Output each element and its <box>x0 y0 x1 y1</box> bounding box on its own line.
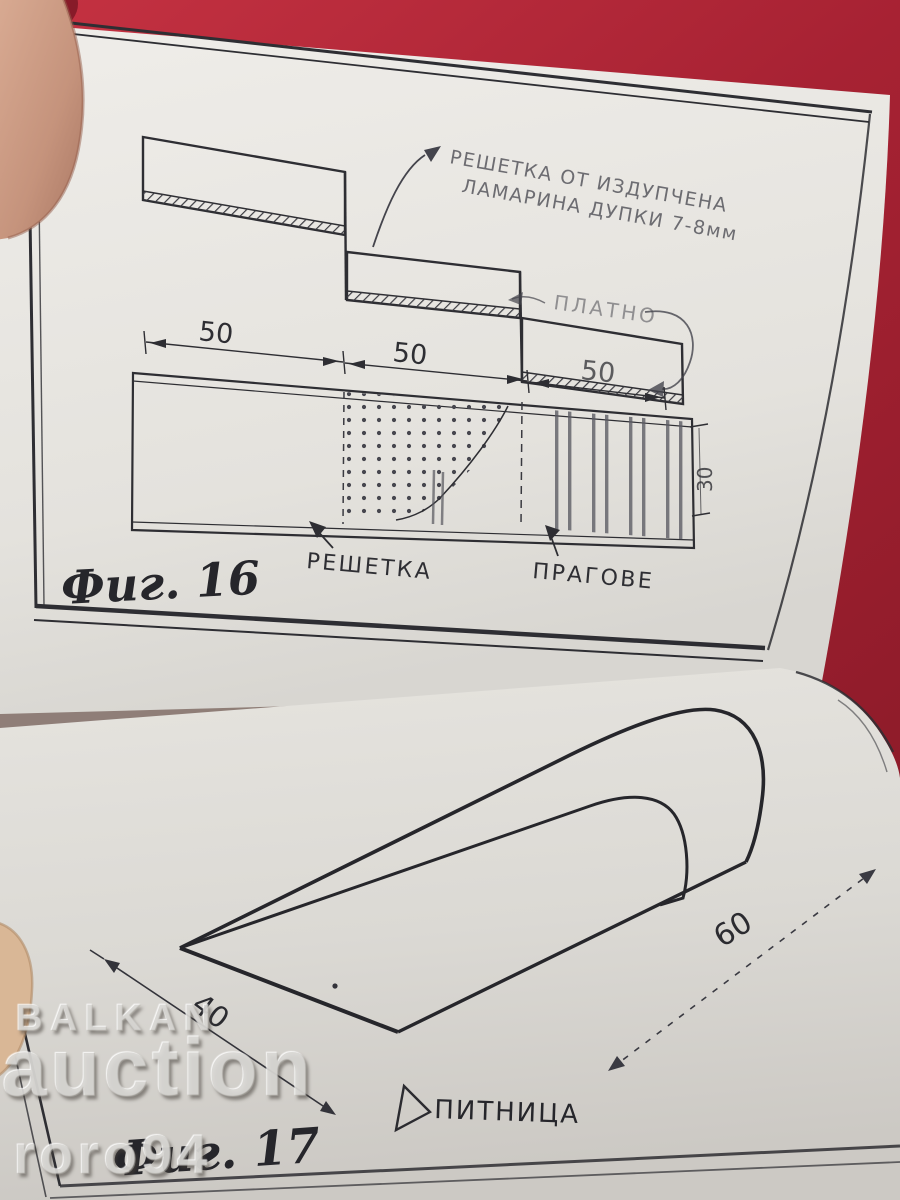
dim-50-right: 50 <box>579 355 616 389</box>
dim-30-height: 30 <box>693 467 717 492</box>
plan-slats-area <box>540 409 692 540</box>
photo-scene: РЕШЕТКА ОТ ИЗДУПЧЕНА ЛАМАРИНА ДУПКИ 7-8м… <box>0 0 900 1200</box>
dim-50-left: 50 <box>197 316 234 350</box>
dim-50-mid: 50 <box>391 337 428 371</box>
pitnitsa-label: ПИТНИЦА <box>434 1095 581 1130</box>
book-photo: РЕШЕТКА ОТ ИЗДУПЧЕНА ЛАМАРИНА ДУПКИ 7-8м… <box>0 0 900 1200</box>
ink-speck <box>332 983 337 988</box>
fig16-caption: Фиг. 16 <box>60 551 262 615</box>
